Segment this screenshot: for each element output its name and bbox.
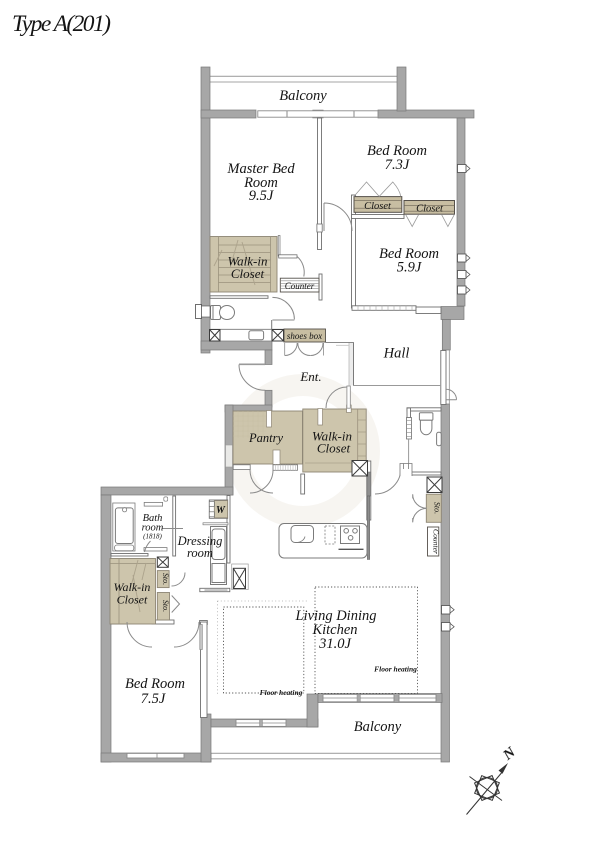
svg-text:Floor heating: Floor heating <box>260 688 303 697</box>
svg-text:5.9J: 5.9J <box>397 260 422 276</box>
svg-text:room: room <box>187 546 213 560</box>
svg-text:shoes box: shoes box <box>287 331 322 341</box>
svg-text:Type A(201): Type A(201) <box>12 11 111 37</box>
svg-text:Hall: Hall <box>383 346 410 362</box>
svg-text:Closet: Closet <box>231 266 265 281</box>
svg-text:7.3J: 7.3J <box>385 157 410 173</box>
svg-text:(1818): (1818) <box>143 533 162 541</box>
svg-text:Closet: Closet <box>364 201 392 212</box>
svg-text:7.5J: 7.5J <box>141 691 166 707</box>
svg-text:Sto.: Sto. <box>161 573 170 585</box>
svg-text:Counter: Counter <box>431 529 439 554</box>
svg-text:W: W <box>216 505 226 516</box>
svg-text:Sto.: Sto. <box>161 600 170 612</box>
svg-text:Closet: Closet <box>416 204 444 215</box>
svg-text:Floor heating: Floor heating <box>374 665 417 674</box>
svg-text:Balcony: Balcony <box>354 719 402 735</box>
svg-text:Closet: Closet <box>317 441 351 456</box>
svg-text:9.5J: 9.5J <box>249 188 274 204</box>
svg-text:Balcony: Balcony <box>279 88 327 104</box>
svg-text:Sto.: Sto. <box>433 502 442 514</box>
svg-text:Pantry: Pantry <box>248 431 283 445</box>
svg-text:Ent.: Ent. <box>299 369 321 384</box>
svg-text:Counter: Counter <box>285 281 315 291</box>
svg-text:31.0J: 31.0J <box>318 636 351 652</box>
svg-text:Bed Room: Bed Room <box>125 676 185 692</box>
svg-text:Closet: Closet <box>117 593 148 607</box>
